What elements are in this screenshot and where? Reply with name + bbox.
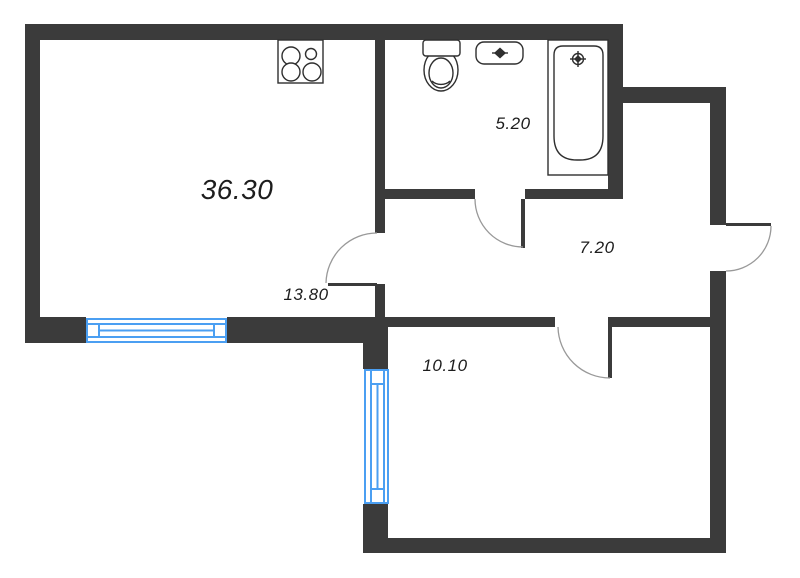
wall-divider-right (608, 317, 710, 327)
living-kitchen-area-label: 13.80 (283, 285, 328, 305)
door-leaf-bedroom (608, 327, 612, 378)
wall-east-upper (710, 87, 726, 225)
wall-east-lower (710, 271, 726, 553)
wall-south-living-left (25, 317, 86, 343)
door-arc-bathroom (475, 199, 523, 247)
door-leaf-living (328, 283, 377, 286)
bedroom-area-label: 10.10 (422, 356, 467, 376)
wall-northeast (608, 87, 726, 103)
wall-bathroom-south-left (385, 189, 475, 199)
door-arc-entry (726, 226, 771, 271)
hallway-area-label: 7.20 (579, 238, 614, 258)
door-arc-bedroom (558, 327, 610, 378)
door-arc-living (326, 233, 377, 283)
bathtub-icon (548, 40, 608, 175)
bathroom-area-label: 5.20 (495, 114, 530, 134)
window-south-icon (87, 319, 226, 342)
walls (25, 24, 726, 553)
floor-plan-drawing (0, 0, 800, 578)
total-area-label: 36.30 (201, 174, 274, 206)
floor-plan: 36.30 13.80 5.20 7.20 10.10 (0, 0, 800, 578)
window-west-icon (365, 370, 388, 503)
toilet-icon (423, 40, 460, 91)
wall-bedroom-west-upper (363, 317, 388, 369)
wall-west (25, 24, 40, 343)
door-arcs (326, 199, 771, 378)
door-leaf-bathroom (521, 199, 525, 248)
sink-icon (476, 42, 523, 64)
wall-divider-left (388, 317, 555, 327)
door-leaves (328, 199, 771, 378)
wall-south-bedroom (363, 538, 726, 553)
wall-interior-upper (375, 40, 385, 233)
wall-bathroom-south-right (525, 189, 608, 199)
door-leaf-entry (726, 223, 771, 226)
stove-icon (278, 40, 323, 83)
wall-bathroom-east (608, 24, 623, 199)
wall-interior-lower (375, 284, 385, 317)
wall-north (25, 24, 623, 40)
